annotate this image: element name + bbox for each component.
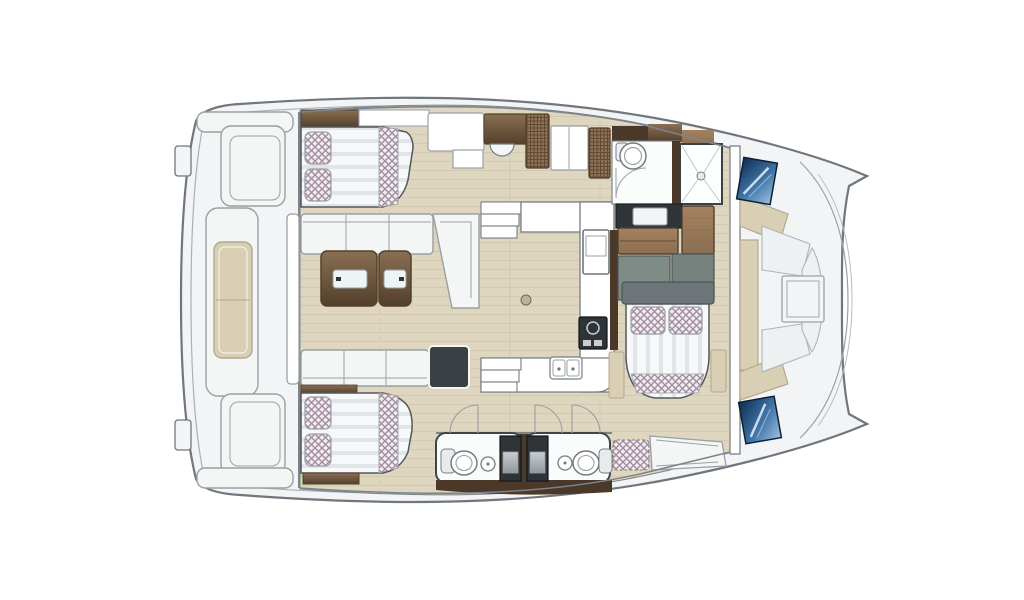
starboard-bed-footboard — [303, 473, 359, 484]
salon-table-1-latch — [336, 277, 341, 281]
transom-step-bottom — [175, 420, 191, 450]
salon — [301, 214, 479, 394]
port-cabin-shelf — [359, 110, 429, 126]
port-bed-pillow-2 — [305, 169, 331, 201]
stairs-bottom — [481, 358, 521, 392]
owner-pillow-2 — [669, 307, 702, 334]
galley-partition-wall — [610, 230, 618, 350]
owner-bed-runner — [631, 374, 704, 393]
stove-control-1 — [583, 340, 591, 346]
vanity-basin — [633, 208, 667, 225]
stairs-top — [481, 202, 521, 238]
galley-faucet-2 — [571, 367, 574, 370]
shower-left-tray — [503, 452, 518, 473]
owner-chaise — [650, 436, 726, 470]
foredeck-seat-back — [740, 240, 758, 370]
port-bed-pillow-1 — [305, 132, 331, 164]
owner-pillow-1 — [631, 307, 665, 334]
owner-step-left — [609, 352, 624, 398]
cabinet-white — [428, 113, 484, 151]
deck-hatch — [782, 276, 824, 322]
salon-sliding-door — [287, 214, 299, 384]
cabinet-wood — [484, 114, 528, 144]
cockpit-bench-bottom — [197, 468, 293, 488]
floor-plan-canvas — [0, 0, 1024, 600]
shower-wall — [672, 141, 680, 204]
head-wall-2 — [648, 124, 682, 142]
head-wall-1 — [612, 126, 648, 141]
coachroof-window-top — [737, 157, 778, 204]
forward-head — [612, 124, 722, 300]
galley-faucet-1 — [557, 367, 560, 370]
floor-socket — [521, 295, 531, 305]
wicker-locker-1 — [526, 114, 549, 168]
owner-bench-cushion — [613, 440, 649, 470]
transom-step-top — [175, 146, 191, 176]
starboard-bed-pillow-1 — [305, 397, 331, 429]
sink-right-drain — [564, 462, 567, 465]
salon-sofa-bottom — [301, 350, 429, 386]
starboard-bed-runner — [379, 393, 398, 473]
catamaran-floor-plan — [0, 0, 1024, 600]
cabinet-white-low — [453, 150, 483, 168]
coachroof-window-bottom — [739, 396, 782, 444]
starboard-bed-pillow-2 — [305, 434, 331, 466]
owner-step-right — [711, 350, 726, 392]
wicker-locker-2 — [589, 128, 610, 178]
shower-right-tray — [530, 452, 545, 473]
sink-left-drain — [487, 463, 490, 466]
salon-table-2-latch — [399, 277, 404, 281]
shower-drain — [697, 172, 705, 180]
salon-sofa-top — [301, 214, 433, 254]
toilet-left — [451, 451, 477, 475]
toilet-right-tank — [599, 449, 612, 473]
port-bed-headboard — [301, 110, 359, 127]
oven — [583, 230, 609, 274]
stove-control-2 — [594, 340, 602, 346]
salon-stool — [429, 346, 469, 388]
port-bed-runner — [379, 127, 398, 207]
owner-headboard — [622, 282, 714, 304]
toilet-right — [573, 451, 599, 475]
